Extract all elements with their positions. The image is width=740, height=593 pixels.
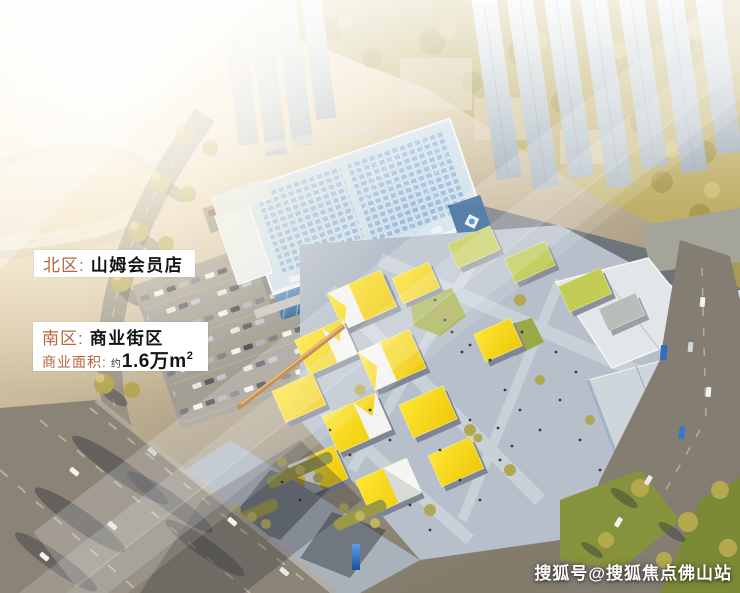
south-zone-prefix: 南区: bbox=[42, 324, 84, 349]
area-label: 商业面积: bbox=[42, 352, 107, 372]
area-approx: 约 bbox=[111, 355, 121, 370]
area-superscript: 2 bbox=[187, 350, 194, 362]
rendering-scene bbox=[0, 0, 740, 593]
north-zone-prefix: 北区: bbox=[43, 251, 85, 276]
south-zone-label: 南区: 商业街区 商业面积: 约 1.6万m2 bbox=[33, 322, 208, 371]
area-value: 1.6万m2 bbox=[122, 346, 193, 373]
north-zone-label: 北区: 山姆会员店 bbox=[34, 250, 195, 277]
north-zone-name: 山姆会员店 bbox=[91, 251, 184, 276]
blue-totem-sign bbox=[352, 544, 360, 570]
watermark: 搜狐号@搜狐焦点佛山站 bbox=[534, 559, 732, 584]
aerial-rendering: 北区: 山姆会员店 南区: 商业街区 商业面积: 约 1.6万m2 搜狐号@搜狐… bbox=[0, 0, 740, 593]
